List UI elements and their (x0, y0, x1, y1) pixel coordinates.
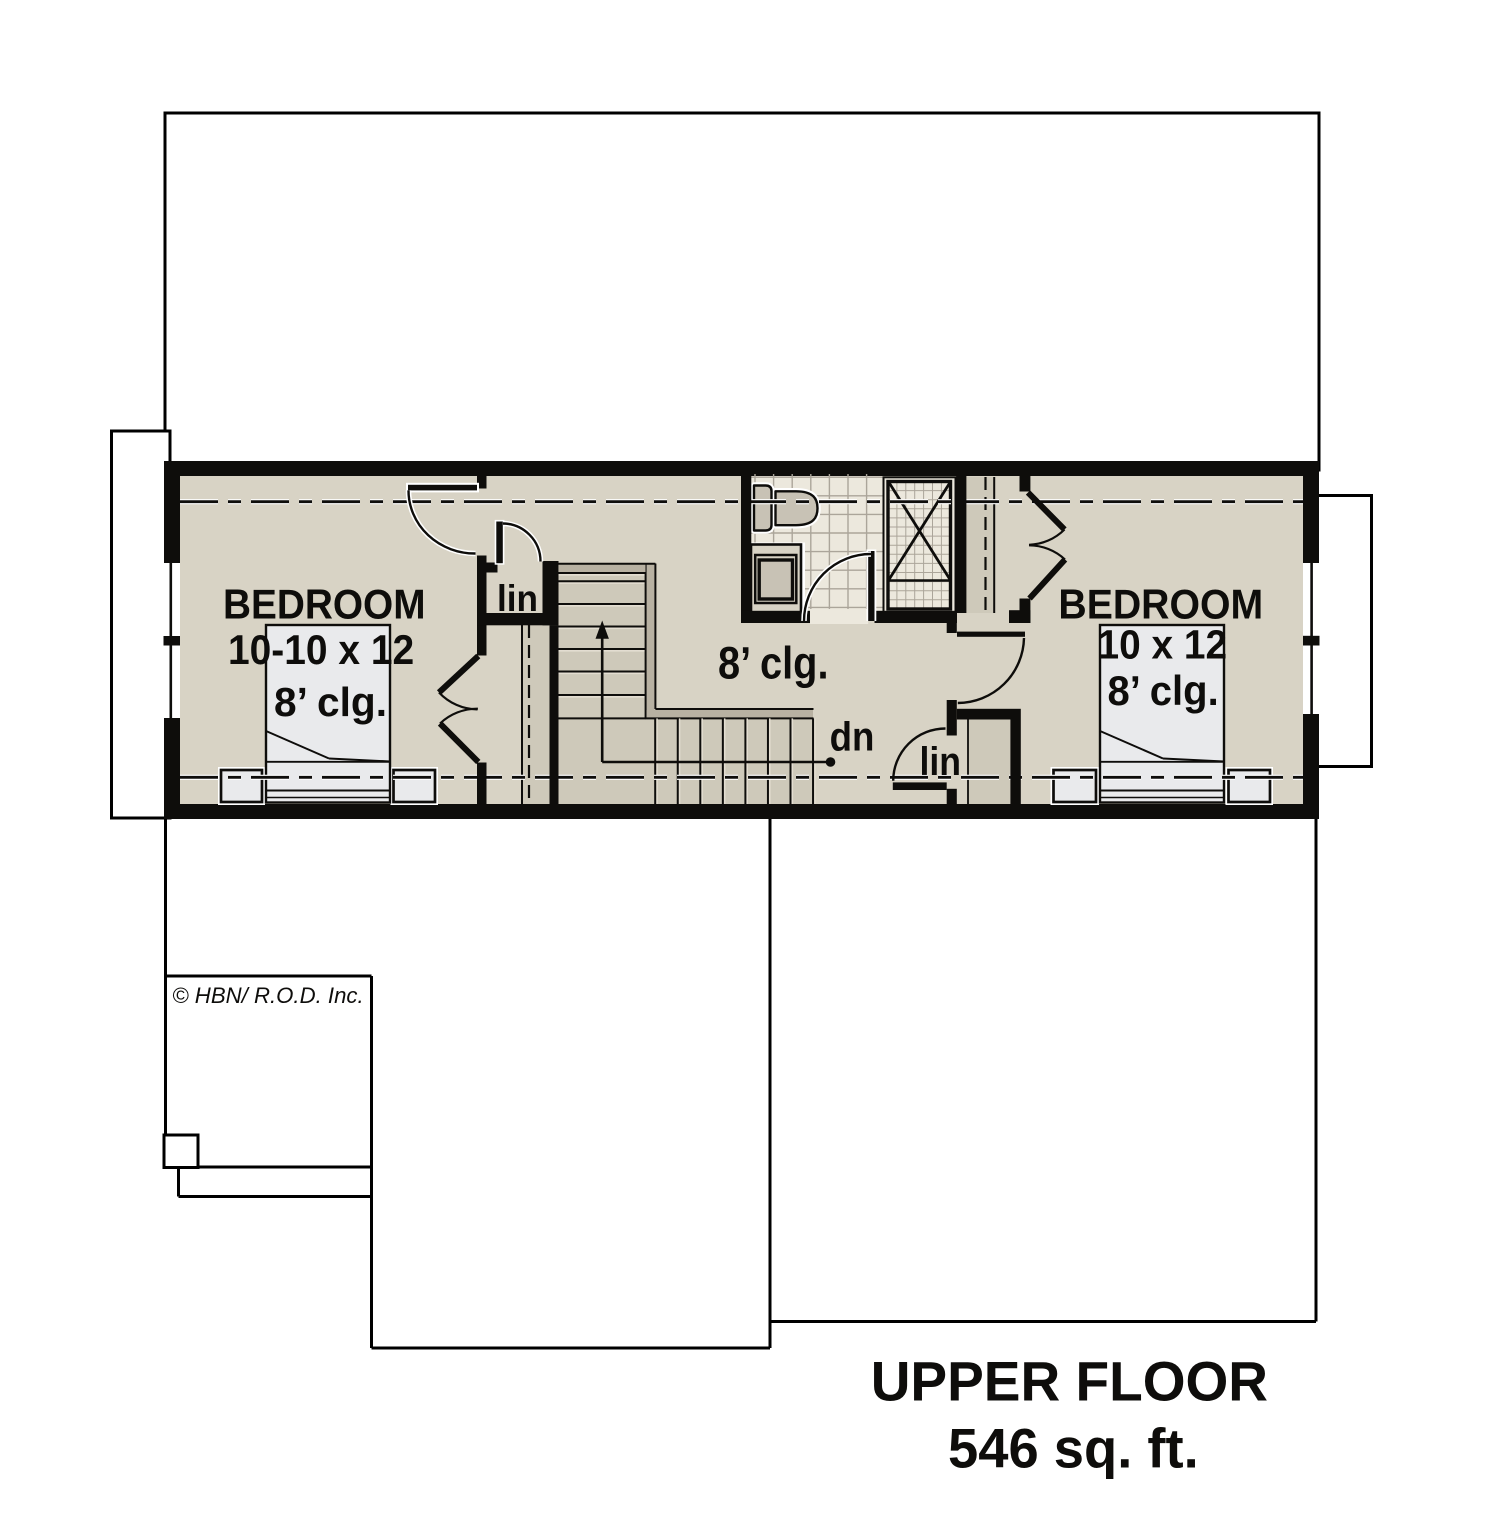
svg-text:8’ clg.: 8’ clg. (1108, 667, 1219, 714)
svg-text:10 x 12: 10 x 12 (1098, 621, 1228, 667)
svg-text:BEDROOM: BEDROOM (223, 580, 426, 627)
svg-text:UPPER FLOOR: UPPER FLOOR (871, 1351, 1268, 1413)
svg-text:dn: dn (830, 713, 875, 759)
svg-text:lin: lin (497, 577, 538, 619)
svg-text:10-10 x 12: 10-10 x 12 (228, 626, 414, 673)
svg-text:© HBN/ R.O.D. Inc.: © HBN/ R.O.D. Inc. (172, 983, 363, 1008)
svg-text:lin: lin (920, 740, 962, 784)
svg-text:8’ clg.: 8’ clg. (718, 638, 829, 689)
svg-text:8’ clg.: 8’ clg. (274, 679, 387, 725)
svg-text:546 sq. ft.: 546 sq. ft. (948, 1417, 1199, 1479)
